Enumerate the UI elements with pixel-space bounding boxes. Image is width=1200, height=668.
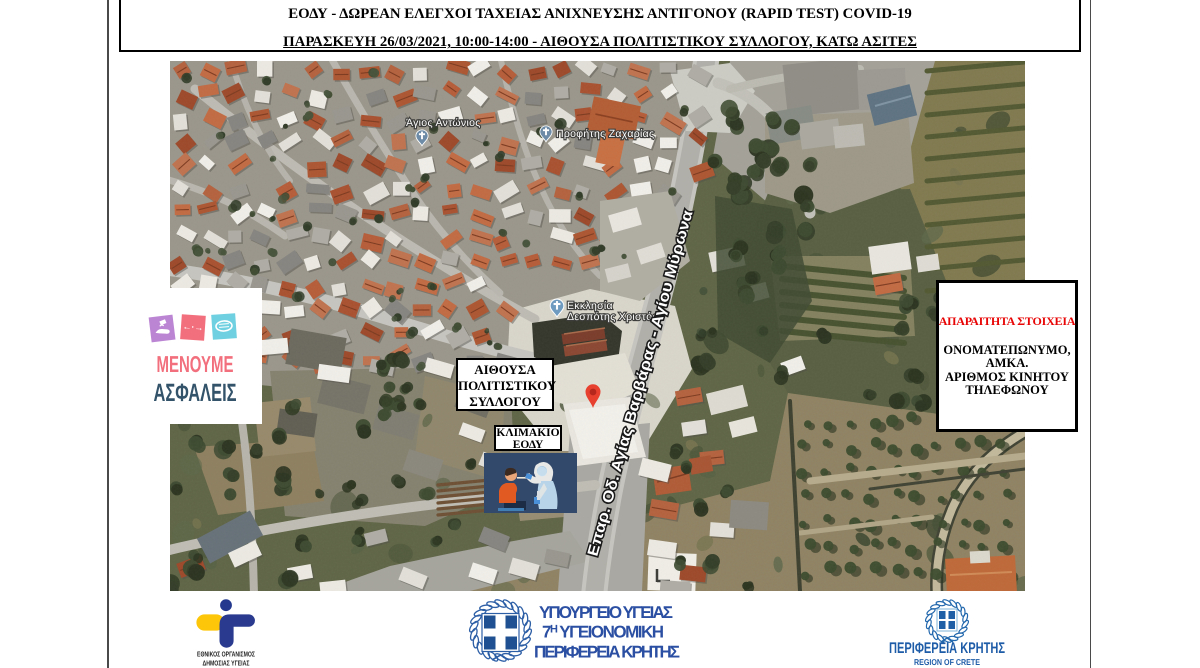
svg-text:Προφήτης Ζαχαρίας: Προφήτης Ζαχαρίας bbox=[556, 128, 654, 140]
svg-text:ΠΕΡΙΦΕΡΕΙΑ ΚΡΗΤΗΣ: ΠΕΡΙΦΕΡΕΙΑ ΚΡΗΤΗΣ bbox=[534, 643, 680, 662]
svg-text:ΠΕΡΙΦΕΡΕΙΑ ΚΡΗΤΗΣ: ΠΕΡΙΦΕΡΕΙΑ ΚΡΗΤΗΣ bbox=[889, 640, 1005, 657]
svg-text:ΔΗΜΟΣΙΑΣ ΥΓΕΙΑΣ: ΔΗΜΟΣΙΑΣ ΥΓΕΙΑΣ bbox=[203, 659, 250, 668]
svg-text:REGION OF CRETE: REGION OF CRETE bbox=[914, 657, 980, 667]
svg-text:Άγιος Αντώνιος: Άγιος Αντώνιος bbox=[406, 117, 481, 129]
svg-text:ΑΣΦΑΛΕΙΣ: ΑΣΦΑΛΕΙΣ bbox=[154, 379, 237, 407]
svg-text:ΕΘΝΙΚΟΣ ΟΡΓΑΝΙΣΜΟΣ: ΕΘΝΙΚΟΣ ΟΡΓΑΝΙΣΜΟΣ bbox=[197, 650, 255, 659]
svg-text:←·→: ←·→ bbox=[182, 321, 204, 332]
svg-text:Δεσπότης Χριστός: Δεσπότης Χριστός bbox=[567, 311, 658, 323]
svg-text:ΥΠΟΥΡΓΕΙΟ ΥΓΕΙΑΣ: ΥΠΟΥΡΓΕΙΟ ΥΓΕΙΑΣ bbox=[539, 603, 673, 622]
svg-text:7Η ΥΓΕΙΟΝΟΜΙΚΗ: 7Η ΥΓΕΙΟΝΟΜΙΚΗ bbox=[542, 623, 664, 642]
svg-text:ΜΕΝΟΥΜΕ: ΜΕΝΟΥΜΕ bbox=[157, 351, 234, 377]
